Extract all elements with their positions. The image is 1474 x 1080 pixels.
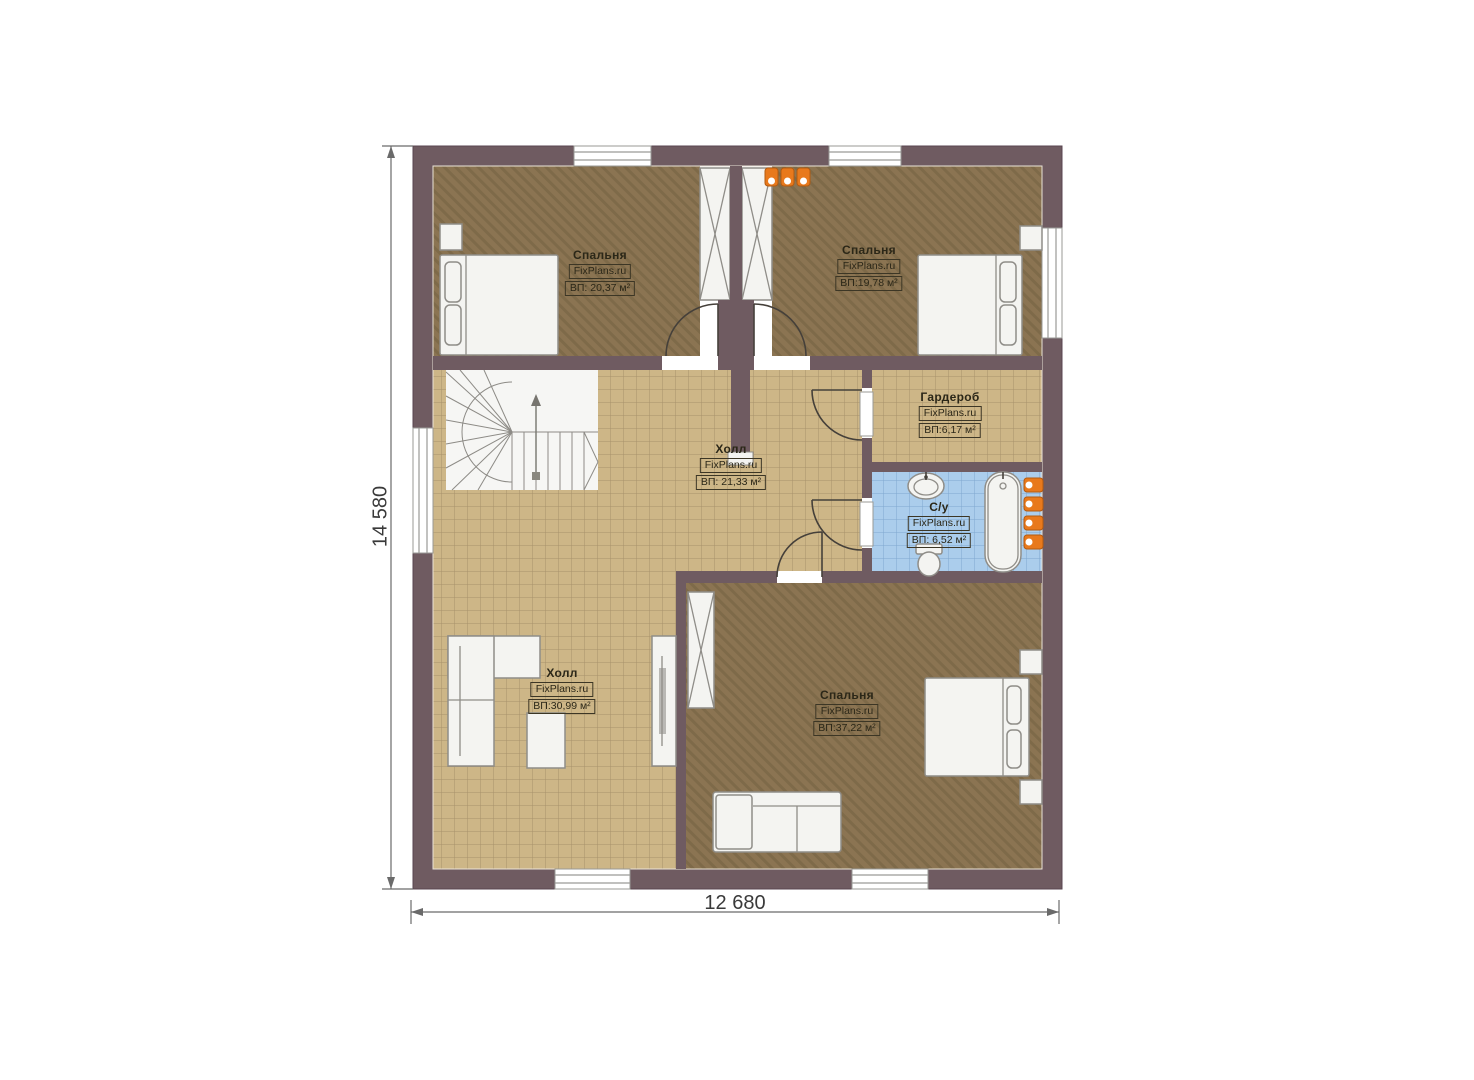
brand-box: FixPlans.ru — [531, 682, 594, 697]
window — [555, 869, 630, 889]
room-name: Холл — [546, 666, 577, 680]
room-name: Спальня — [820, 688, 874, 702]
brand-box: FixPlans.ru — [908, 516, 971, 531]
radiator-icon — [1024, 478, 1043, 492]
room-label-bathroom: С/у FixPlans.ru ВП: 6,52 м² — [907, 500, 971, 548]
room-label-wardrobe: Гардероб FixPlans.ru ВП:6,17 м² — [919, 390, 982, 438]
area-box: ВП:6,17 м² — [919, 423, 981, 438]
nightstand-icon — [440, 224, 462, 250]
radiator-icon — [765, 168, 778, 186]
sofa-icon — [713, 792, 841, 852]
floor-plan-drawing — [0, 0, 1474, 1080]
radiator-icon — [781, 168, 794, 186]
brand-box: FixPlans.ru — [700, 458, 763, 473]
area-box: ВП: 21,33 м² — [696, 475, 766, 490]
tv-stand-icon — [652, 636, 676, 766]
area-box: ВП:19,78 м² — [835, 276, 902, 291]
wardrobe-x-icon — [688, 592, 714, 708]
area-box: ВП: 20,37 м² — [565, 281, 635, 296]
sink-icon — [908, 472, 944, 499]
nightstand-icon — [1020, 780, 1042, 804]
radiator-icon — [797, 168, 810, 186]
room-name: Спальня — [573, 248, 627, 262]
radiator-icon — [1024, 516, 1043, 530]
brand-box: FixPlans.ru — [816, 704, 879, 719]
bathtub-icon — [985, 472, 1021, 572]
area-box: ВП:30,99 м² — [528, 699, 595, 714]
room-name: С/у — [929, 500, 949, 514]
window — [574, 146, 651, 166]
bed-icon — [918, 255, 1022, 355]
window — [829, 146, 901, 166]
wardrobe-x-icon — [700, 168, 730, 300]
stairs-icon — [446, 370, 598, 490]
wardrobe-x-icon — [742, 168, 772, 300]
window — [852, 869, 928, 889]
room-label-bedroom-2: Спальня FixPlans.ru ВП:19,78 м² — [835, 243, 902, 291]
radiator-icon — [1024, 497, 1043, 511]
room-label-bedroom-1: Спальня FixPlans.ru ВП: 20,37 м² — [565, 248, 635, 296]
brand-box: FixPlans.ru — [919, 406, 982, 421]
area-box: ВП: 6,52 м² — [907, 533, 971, 548]
window — [413, 428, 433, 553]
brand-box: FixPlans.ru — [838, 259, 901, 274]
floor-plan-canvas: Спальня FixPlans.ru ВП: 20,37 м² Спальня… — [0, 0, 1474, 1080]
coffee-table-icon — [527, 713, 565, 768]
nightstand-icon — [1020, 226, 1042, 250]
nightstand-icon — [1020, 650, 1042, 674]
room-label-hall-center: Холл FixPlans.ru ВП: 21,33 м² — [696, 442, 766, 490]
room-name: Холл — [715, 442, 746, 456]
dimension-width-label: 12 680 — [675, 892, 795, 915]
window — [1042, 228, 1062, 338]
radiator-icon — [1024, 535, 1043, 549]
toilet-icon — [916, 544, 942, 576]
dimension-height-label: 14 580 — [370, 472, 393, 562]
room-label-bedroom-3: Спальня FixPlans.ru ВП:37,22 м² — [813, 688, 880, 736]
room-name: Спальня — [842, 243, 896, 257]
bed-icon — [925, 678, 1029, 776]
room-label-hall-lower: Холл FixPlans.ru ВП:30,99 м² — [528, 666, 595, 714]
bed-icon — [440, 255, 558, 355]
brand-box: FixPlans.ru — [569, 264, 632, 279]
area-box: ВП:37,22 м² — [813, 721, 880, 736]
room-name: Гардероб — [920, 390, 979, 404]
